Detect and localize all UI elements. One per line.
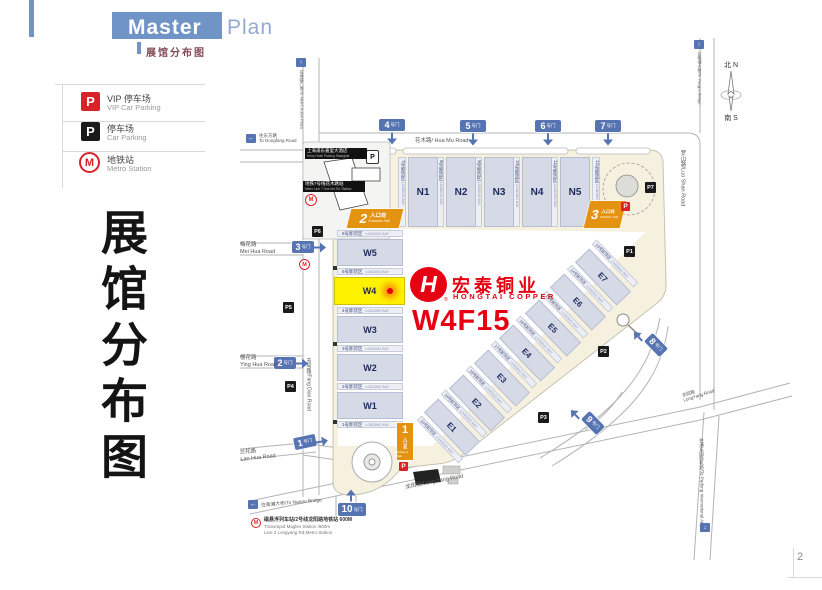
gate-5-arrow-icon [468, 133, 478, 146]
hall-label: W1 [363, 401, 377, 411]
legend-divider [55, 84, 205, 85]
gate-3-arrow-icon [314, 243, 327, 253]
bay-en: LOADING BAY [477, 182, 481, 205]
bay-label: 11号卸货区 [553, 160, 558, 183]
metro-station-icon-huamu: M [305, 194, 317, 206]
parking-p6-icon: P6 [312, 226, 323, 237]
registered-mark: ® [444, 297, 448, 303]
hall-n4: N4 [522, 157, 552, 227]
parking-p3-icon: P3 [538, 412, 549, 423]
entrance-1: 1 入口处 Entrance Hall [397, 423, 413, 460]
entrance-en: Entrance Hall [368, 219, 390, 224]
loading-bay-w6: 6号卸货区LOADING BAY [337, 230, 403, 237]
hall-label: W2 [363, 363, 377, 373]
hall-label: E3 [495, 371, 508, 384]
kerry-en: Kerry Hotel Pudong Shanghai [307, 154, 365, 159]
hall-label: W4 [363, 286, 377, 296]
legend-divider [62, 151, 205, 152]
gate-suffix: 号门 [302, 244, 311, 250]
sign-yangpu-text: 往杨浦大桥/To Yangpu Bridge [696, 52, 703, 122]
gate-4: 4号门 [379, 119, 405, 131]
vip-parking-entrance1-icon: P [399, 462, 408, 471]
parking-label: P [370, 154, 375, 161]
bay-label: 4号卸货区 [342, 308, 363, 314]
loading-bay-w3: 3号卸货区LOADING BAY [337, 345, 403, 352]
gate-number: 3 [295, 242, 300, 252]
hall-n1: N1 [408, 157, 438, 227]
gate-6-arrow-icon [543, 133, 553, 146]
hall-label: W3 [363, 325, 377, 335]
gate-number: 6 [540, 121, 545, 131]
gate-suffix: 号门 [547, 123, 556, 129]
hall-w4-highlighted: W4 [334, 277, 405, 305]
metro-icon: M [79, 152, 100, 173]
page-number: 2 [797, 551, 803, 563]
loading-bay-w1: 1号卸货区LOADING BAY [337, 421, 403, 428]
metro-line7-station-label: 地铁7号线花木路站 Metro Line 7 Hua Mu Rd. Statio… [303, 181, 365, 192]
exhibitor-logo: H [410, 267, 447, 302]
top-left-accent-bar [29, 0, 34, 37]
entrance-number: 1 [402, 425, 408, 436]
bay-en: LOADING BAY [366, 232, 389, 236]
loading-bay-w2: 2号卸货区LOADING BAY [337, 383, 403, 390]
hall-label: N5 [569, 187, 582, 198]
gate-4-arrow-icon [387, 132, 397, 145]
bay-en: LOADING BAY [366, 309, 389, 313]
metro-letter: M [254, 520, 258, 526]
bay-en: LOADING BAY [401, 182, 405, 205]
parking-p5-icon: P5 [283, 302, 294, 313]
booth-location-marker [387, 288, 393, 294]
hall-label: E2 [470, 396, 483, 409]
hall-label: N1 [417, 187, 430, 198]
parking-label: P1 [626, 249, 633, 255]
bay-label: 3号卸货区 [342, 346, 363, 352]
gate-suffix: 号门 [391, 122, 400, 128]
hotel-parking-icon: P [366, 150, 379, 164]
entrance-2: 2 入口处Entrance Hall [347, 209, 404, 228]
gate-suffix: 号门 [590, 420, 601, 431]
footer-rule-v [793, 548, 794, 578]
dock-marker [333, 420, 337, 424]
parking-label: P4 [287, 384, 294, 390]
bay-label: 1号卸货区 [342, 422, 363, 428]
hall-label: E5 [546, 321, 559, 334]
bay-en: LOADING BAY [366, 423, 389, 427]
logo-letter: H [420, 271, 437, 298]
hall-label: W5 [363, 248, 377, 258]
bay-en: LOADING BAY [553, 184, 557, 207]
hall-w1: W1 [337, 392, 403, 419]
hall-n2: N2 [446, 157, 476, 227]
gate-10-arrow-icon [346, 489, 356, 502]
gate-suffix: 号门 [607, 123, 616, 129]
kerry-hotel-label: 上海浦东嘉里大酒店 Kerry Hotel Pudong Shanghai [305, 148, 367, 159]
hall-label: E1 [445, 420, 458, 433]
hall-w5: W5 [337, 239, 403, 266]
bay-en: LOADING BAY [439, 182, 443, 205]
hall-w2: W2 [337, 354, 403, 381]
gate-suffix: 号门 [354, 507, 363, 513]
legend-vip-en: VIP Car Parking [107, 103, 161, 112]
gate-suffix: 号门 [284, 360, 293, 366]
bay-en: LOADING BAY [366, 385, 389, 389]
parking-p7-icon: P7 [645, 182, 656, 193]
parking-label: P2 [600, 349, 607, 355]
sign-metro-plaza-arrow: ↑ [296, 58, 306, 67]
parking-p2-icon: P2 [598, 346, 609, 357]
entrance-3: 3 入口处Entrance Hall [584, 201, 627, 228]
road-label-huamu: 花木路/ Hua Mu Road [415, 138, 469, 145]
hall-label: N2 [455, 187, 468, 198]
gate-number: 10 [341, 504, 352, 515]
loading-bay-w5: 5号卸货区LOADING BAY [337, 268, 403, 275]
parking-label: P5 [285, 305, 292, 311]
road-en: Mei Hua Road [240, 249, 275, 256]
sign-airport-arrow: ↓ [700, 523, 710, 532]
loading-bay-w4: 4号卸货区LOADING BAY [337, 307, 403, 314]
sign-en: To Dongfang Road [259, 138, 297, 143]
hall-label: E4 [520, 346, 533, 359]
entrance-en: Entrance Hall [397, 450, 413, 459]
sign-nanpu-arrow: ← [248, 500, 258, 509]
bay-label: 10号卸货区 [515, 160, 520, 183]
bay-label: 5号卸货区 [342, 269, 363, 275]
vip-parking-letter: P [86, 94, 95, 109]
parking-p4-icon: P4 [285, 381, 296, 392]
booth-number: W4F15 [412, 305, 510, 338]
side-title-vertical: 展馆分布图 [90, 208, 150, 508]
parking-label: P7 [647, 185, 654, 191]
metro-letter: M [309, 197, 314, 203]
road-label-fangdian: 芳甸路/Fang Dian Road [305, 358, 312, 438]
metro-note-en1: Transrapid Maglev Station /600m [264, 524, 330, 530]
masterplan-slide: Master Plan 展馆分布图 P VIP 停车场 VIP Car Park… [0, 0, 822, 590]
bay-label: 7号卸货区 [401, 160, 406, 181]
road-label-meihua: 梅花路Mei Hua Road [240, 242, 275, 255]
hall-label: N4 [531, 187, 544, 198]
entrance-en: Entrance Hall [599, 215, 618, 220]
sign-dongfang-arrow: ← [246, 134, 256, 143]
bay-label: 2号卸货区 [342, 384, 363, 390]
legend-metro-en: Metro Station [107, 164, 152, 173]
vip-parking-entrance3-icon: P [621, 202, 630, 211]
gate-number: 7 [600, 121, 605, 131]
hall-w3: W3 [337, 316, 403, 343]
parking-icon: P [81, 122, 100, 141]
metro-note-en2: Line 2 Longyang Rd.Metro Station [264, 530, 332, 536]
bay-label: 9号卸货区 [477, 160, 482, 181]
road-en: Ying Hua Road [240, 362, 277, 369]
gate-2: 2号门 [274, 357, 296, 369]
bay-label: 6号卸货区 [342, 231, 363, 237]
metro7-en: Metro Line 7 Hua Mu Rd. Station [305, 187, 363, 192]
parking-label: P [623, 203, 627, 210]
legend-left-rule [62, 84, 63, 188]
page-subtitle-zh: 展馆分布图 [146, 44, 206, 59]
gate-6: 6号门 [535, 120, 561, 132]
hall-label: E7 [596, 270, 609, 283]
hall-label: E6 [571, 295, 584, 308]
sign-yangpu-arrow: ↑ [694, 40, 704, 49]
entrance-zh: 入口处 [403, 437, 408, 449]
legend-car-en: Car Parking [107, 133, 147, 142]
sign-dongfang-text: 往东方路To Dongfang Road [259, 133, 297, 143]
road-label-yinghua: 樱花路Ying Hua Road [240, 355, 277, 368]
metro-letter: M [302, 262, 307, 268]
parking-label: P [401, 463, 405, 470]
subtitle-bullet [137, 42, 141, 54]
gate-number: 5 [465, 121, 470, 131]
vip-parking-icon: P [81, 92, 100, 111]
gate-10: 10号门 [338, 503, 366, 516]
parking-letter: P [86, 124, 95, 139]
compass-south-label: 南 S [716, 113, 746, 123]
bay-label: 8号卸货区 [439, 160, 444, 181]
page-title-en-1: Master [128, 16, 202, 40]
page-title-en-2: Plan [227, 16, 273, 40]
gate-number: 4 [384, 120, 389, 130]
bay-en: LOADING BAY [366, 270, 389, 274]
parking-label: P6 [314, 229, 321, 235]
hall-n3: N3 [484, 157, 514, 227]
road-label-luoshan: 罗山路/Luo Shan Road [679, 150, 686, 230]
parking-label: P3 [540, 415, 547, 421]
metro-note-icon: M [251, 518, 261, 528]
gate-7-arrow-icon [603, 133, 613, 146]
gate-7: 7号门 [595, 120, 621, 132]
exhibitor-name-en: HONGTAI COPPER [453, 292, 556, 301]
metro-station-icon-gate3: M [299, 259, 310, 270]
sign-metro-plaza-text: 往地铁广场/To Metro Kunxi Plaza [298, 70, 305, 128]
gate-number: 2 [277, 358, 282, 368]
dock-marker [333, 266, 337, 270]
metro-note-zh: 磁悬浮列车站/2号线龙阳路地铁站 600M [264, 517, 352, 523]
gate-suffix: 号门 [653, 342, 664, 353]
dock-marker [333, 342, 337, 346]
gate-3: 3号门 [292, 241, 314, 253]
parking-p1-icon: P1 [624, 246, 635, 257]
bay-en: LOADING BAY [366, 347, 389, 351]
gate-5: 5号门 [460, 120, 486, 132]
compass-needle-icon [720, 69, 742, 113]
bay-label: 12号卸货区 [595, 160, 600, 183]
hall-label: N3 [493, 187, 506, 198]
metro-letter: M [85, 157, 94, 169]
footer-rule-h [788, 577, 822, 578]
gate-suffix: 号门 [303, 438, 313, 446]
gate-suffix: 号门 [472, 123, 481, 129]
bay-en: LOADING BAY [515, 184, 519, 207]
